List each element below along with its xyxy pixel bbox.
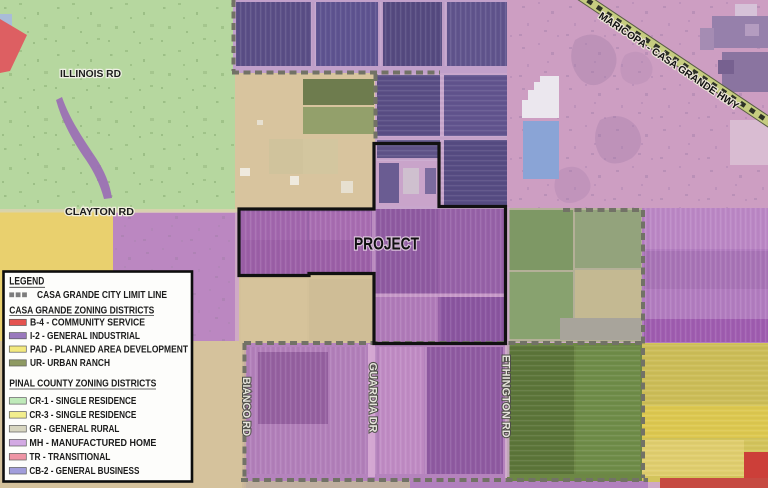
svg-text:BIANCO RD: BIANCO RD: [240, 377, 252, 436]
svg-text:MH - MANUFACTURED HOME: MH - MANUFACTURED HOME: [29, 438, 156, 449]
svg-text:CB-2 - GENERAL BUSINESS: CB-2 - GENERAL BUSINESS: [29, 466, 139, 477]
svg-text:LEGEND: LEGEND: [9, 276, 44, 288]
svg-text:CASA GRANDE ZONING DISTRICTS: CASA GRANDE ZONING DISTRICTS: [9, 305, 154, 316]
svg-text:GUARDIA DR: GUARDIA DR: [367, 363, 379, 433]
svg-text:PINAL COUNTY ZONING DISTRICTS: PINAL COUNTY ZONING DISTRICTS: [9, 379, 156, 390]
svg-text:ETHINGTON RD: ETHINGTON RD: [499, 355, 511, 438]
svg-text:TR - TRANSITIONAL: TR - TRANSITIONAL: [29, 452, 110, 463]
svg-text:CASA GRANDE CITY LIMIT LINE: CASA GRANDE CITY LIMIT LINE: [37, 290, 167, 301]
svg-text:PAD - PLANNED AREA DEVELOPMENT: PAD - PLANNED AREA DEVELOPMENT: [30, 344, 188, 355]
svg-text:PROJECT: PROJECT: [354, 234, 419, 254]
svg-text:GR - GENERAL RURAL: GR - GENERAL RURAL: [29, 424, 119, 435]
svg-text:UR- URBAN RANCH: UR- URBAN RANCH: [30, 358, 110, 369]
svg-text:I-2 - GENERAL INDUSTRIAL: I-2 - GENERAL INDUSTRIAL: [30, 331, 140, 342]
svg-text:ILLINOIS RD: ILLINOIS RD: [60, 69, 121, 80]
svg-text:B-4 - COMMUNITY SERVICE: B-4 - COMMUNITY SERVICE: [30, 318, 145, 329]
svg-text:CLAYTON RD: CLAYTON RD: [65, 207, 134, 218]
svg-text:CR-1 - SINGLE RESIDENCE: CR-1 - SINGLE RESIDENCE: [29, 396, 136, 407]
svg-text:CR-3 - SINGLE RESIDENCE: CR-3 - SINGLE RESIDENCE: [29, 410, 136, 421]
